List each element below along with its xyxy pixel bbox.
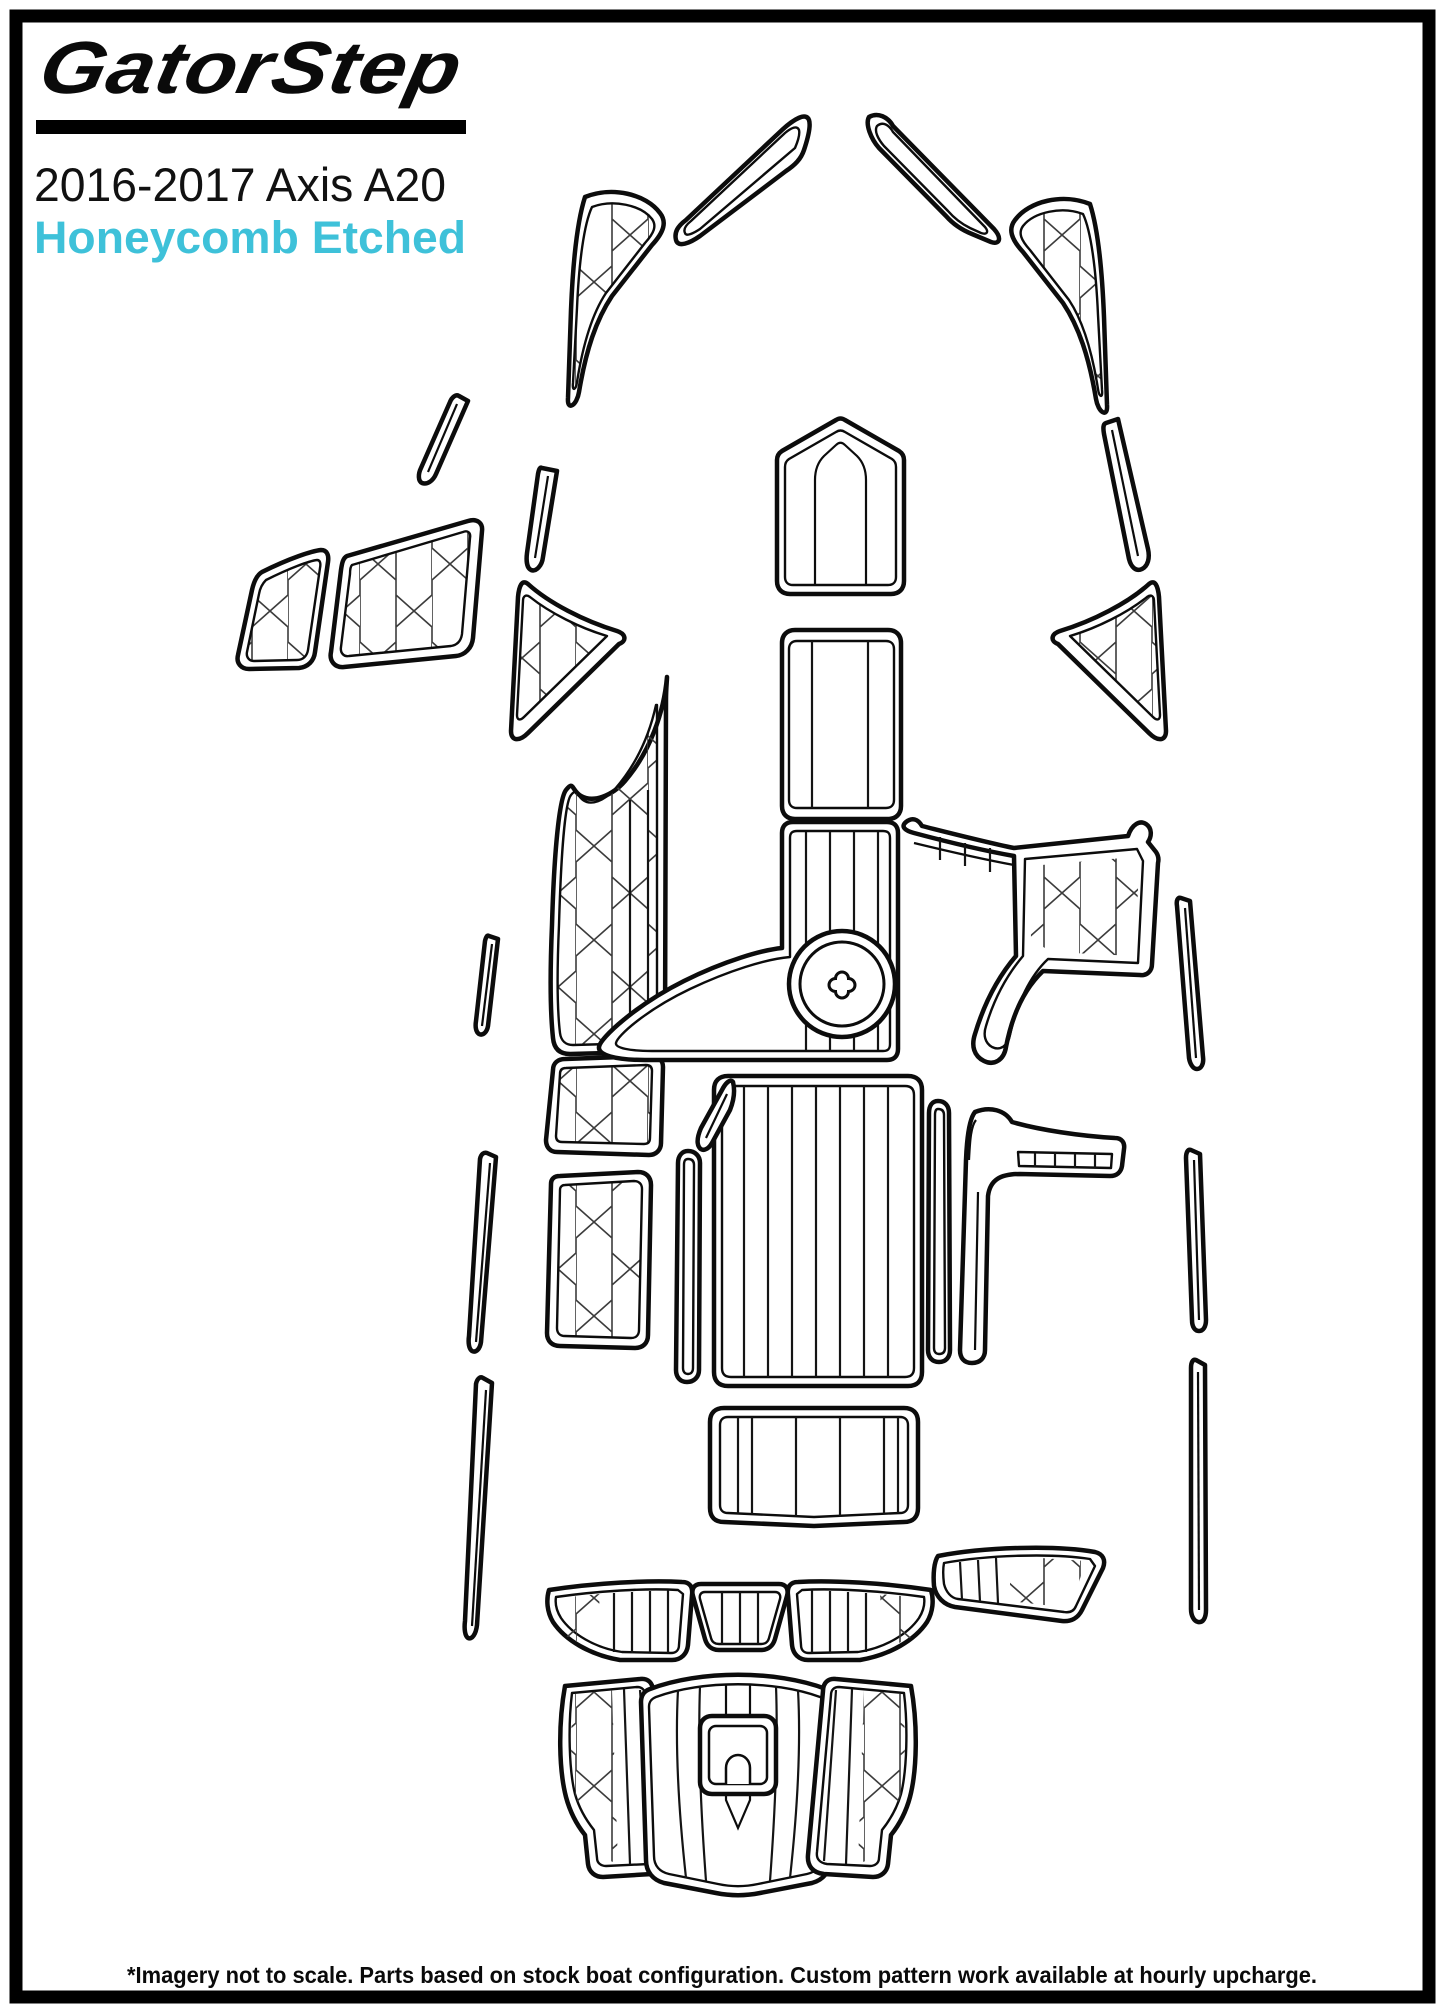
- port-step-triangle-pad: [511, 582, 624, 739]
- stern-seat-pad-right: [788, 1581, 933, 1660]
- template-sheet: GatorStep 2016-2017 Axis A20 Honeycomb E…: [0, 0, 1445, 2013]
- starboard-gunwale-step-pad: [934, 1548, 1105, 1621]
- starboard-gunwale-strip-1: [1177, 898, 1203, 1069]
- starboard-step-triangle-pad: [1053, 582, 1166, 739]
- stern-seat-pad-left: [547, 1581, 692, 1660]
- cockpit-floor-pad: [714, 1076, 922, 1386]
- port-storage-pad-large: [331, 520, 482, 667]
- port-bow-gunwale-strip: [675, 117, 809, 245]
- port-hull-strip-lower: [527, 468, 557, 571]
- page-title: 2016-2017 Axis A20: [34, 158, 446, 211]
- starboard-bow-pad: [1011, 199, 1107, 413]
- starboard-gunwale-strip-2: [1186, 1150, 1206, 1331]
- port-gunwale-strip-3: [465, 1377, 492, 1638]
- swim-platform-right-pad: [808, 1679, 916, 1877]
- port-bow-pad: [568, 192, 664, 406]
- port-bow-step-pad: [551, 677, 667, 1054]
- port-gunwale-strip-2: [469, 1153, 496, 1352]
- footer-note: *Imagery not to scale. Parts based on st…: [127, 1962, 1317, 1988]
- bow-walkway-pad: [782, 630, 901, 819]
- port-storage-pad-small: [238, 550, 329, 669]
- starboard-console-step-pad: [960, 1109, 1124, 1363]
- starboard-bow-gunwale-strip: [868, 115, 999, 243]
- port-gunwale-strip-1: [476, 936, 498, 1035]
- deck-pad-diagram: GatorStep 2016-2017 Axis A20 Honeycomb E…: [0, 0, 1445, 2013]
- brand-logo-text: GatorStep: [33, 26, 471, 109]
- stern-seat-pad-center: [692, 1584, 787, 1650]
- swim-platform-center-pad: [641, 1675, 835, 1896]
- starboard-hull-strip: [1103, 419, 1148, 570]
- brand-logo: GatorStep: [33, 26, 471, 134]
- rear-bench-pad: [710, 1408, 918, 1526]
- port-mid-pad-upper: [546, 1056, 663, 1155]
- logo-underline: [36, 120, 466, 134]
- starboard-gunwale-strip-3: [1191, 1360, 1206, 1622]
- ladder-cutout: [700, 1716, 776, 1794]
- bow-walkway-shield-pad: [777, 419, 904, 595]
- starboard-console-pad: [904, 819, 1159, 1063]
- port-floor-edge-pad: [676, 1151, 700, 1382]
- starboard-floor-edge-pad: [928, 1101, 950, 1362]
- port-hull-strip-upper: [419, 395, 468, 483]
- page-subtitle: Honeycomb Etched: [34, 212, 466, 263]
- port-mid-pad-lower: [547, 1172, 651, 1348]
